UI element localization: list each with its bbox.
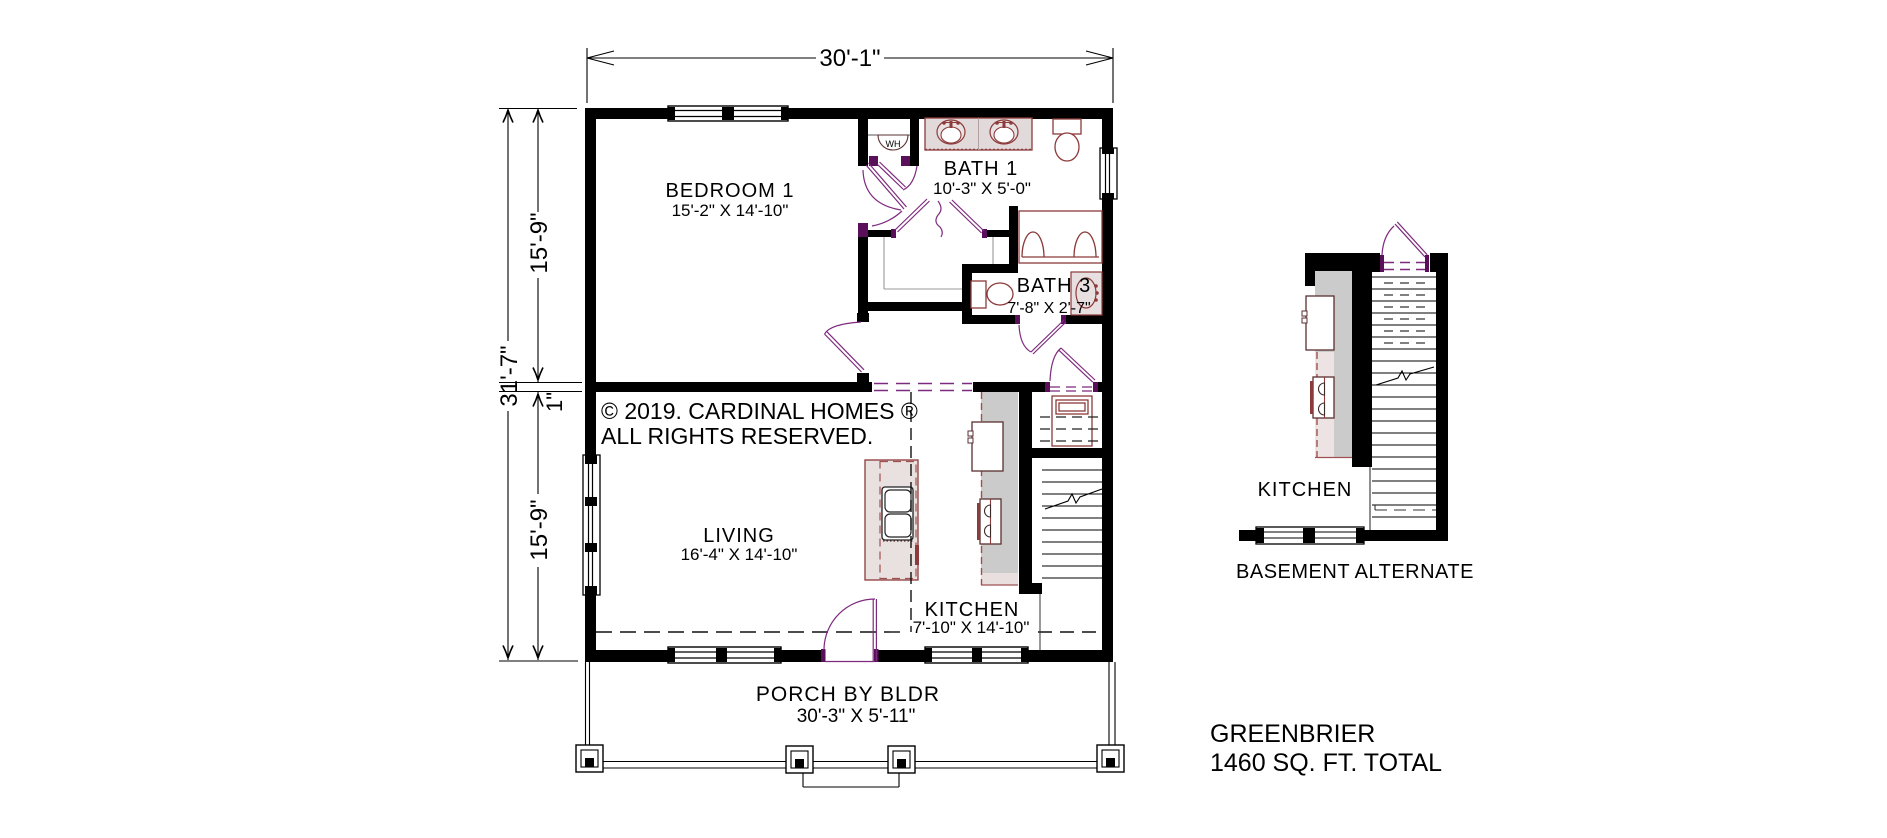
svg-text:ALL RIGHTS RESERVED.: ALL RIGHTS RESERVED. <box>601 423 873 449</box>
svg-text:7'-8" X 2'-7": 7'-8" X 2'-7" <box>1007 300 1090 317</box>
svg-text:LIVING: LIVING <box>703 525 775 547</box>
svg-text:15'-9": 15'-9" <box>526 212 553 273</box>
svg-text:BATH 1: BATH 1 <box>944 158 1019 180</box>
svg-text:BATH 3: BATH 3 <box>1017 275 1092 297</box>
svg-text:BASEMENT ALTERNATE: BASEMENT ALTERNATE <box>1236 561 1474 583</box>
svg-text:15'-9": 15'-9" <box>526 499 553 560</box>
svg-text:1460 SQ. FT. TOTAL: 1460 SQ. FT. TOTAL <box>1210 749 1442 777</box>
svg-text:WH: WH <box>886 139 901 149</box>
svg-text:GREENBRIER: GREENBRIER <box>1210 720 1375 748</box>
svg-text:7'-10" X 14'-10": 7'-10" X 14'-10" <box>913 618 1030 637</box>
svg-text:PORCH BY BLDR: PORCH BY BLDR <box>756 683 940 706</box>
svg-text:10'-3" X 5'-0": 10'-3" X 5'-0" <box>933 179 1031 198</box>
svg-text:16'-4" X 14'-10": 16'-4" X 14'-10" <box>681 545 798 564</box>
svg-text:© 2019. CARDINAL HOMES ®: © 2019. CARDINAL HOMES ® <box>601 398 918 424</box>
svg-text:15'-2" X 14'-10": 15'-2" X 14'-10" <box>672 201 789 220</box>
svg-text:30'-3" X 5'-11": 30'-3" X 5'-11" <box>797 706 916 727</box>
svg-text:30'-1": 30'-1" <box>819 45 880 72</box>
svg-text:BEDROOM 1: BEDROOM 1 <box>665 180 794 202</box>
svg-text:KITCHEN: KITCHEN <box>1258 479 1353 501</box>
svg-text:31'-7": 31'-7" <box>496 345 523 406</box>
svg-text:1": 1" <box>542 392 567 412</box>
